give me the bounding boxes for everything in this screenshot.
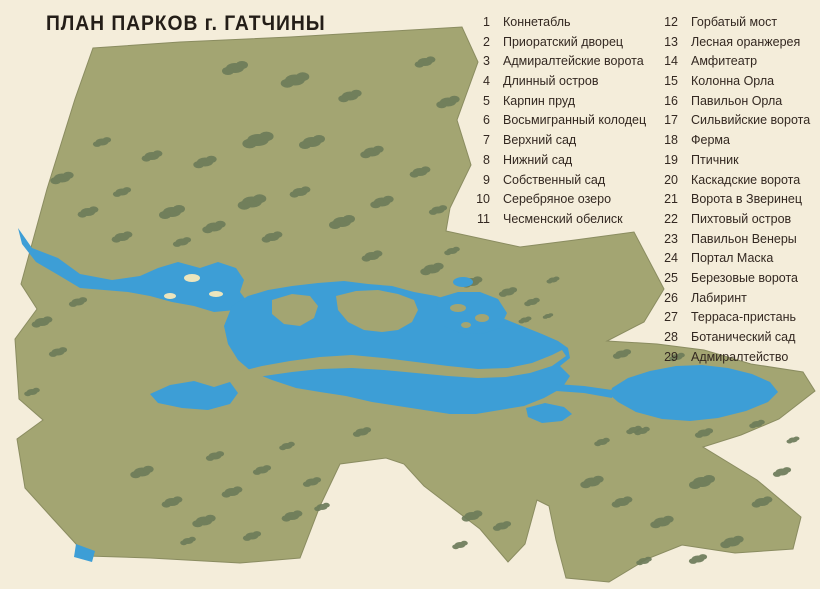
legend-item: 4Длинный остров [472, 72, 657, 92]
legend-item: 26Лабиринт [660, 289, 820, 309]
legend-item-label: Терраса-пристань [691, 308, 820, 328]
legend-item-label: Сильвийские ворота [691, 111, 820, 131]
legend-item-label: Пихтовый остров [691, 210, 820, 230]
legend-item-label: Ферма [691, 131, 820, 151]
legend-item-number: 23 [660, 230, 678, 250]
legend-item-number: 17 [660, 111, 678, 131]
legend-item-number: 29 [660, 348, 678, 368]
forest-blob [773, 467, 791, 477]
map-page: ПЛАН ПАРКОВ г. ГАТЧИНЫ 1Коннетабль2Приор… [0, 0, 820, 589]
legend-item: 21Ворота в Зверинец [660, 190, 820, 210]
legend-item: 7Верхний сад [472, 131, 657, 151]
legend-item: 3Адмиралтейские ворота [472, 52, 657, 72]
legend-item: 29Адмиралтейство [660, 348, 820, 368]
legend-item-label: Адмиралтейские ворота [503, 52, 657, 72]
legend-item-label: Восьмигранный колодец [503, 111, 657, 131]
legend-item: 16Павильон Орла [660, 92, 820, 112]
legend-item-number: 12 [660, 13, 678, 33]
legend-item-number: 25 [660, 269, 678, 289]
legend-item-number: 26 [660, 289, 678, 309]
legend-item-label: Портал Маска [691, 249, 820, 269]
legend-item-number: 21 [660, 190, 678, 210]
legend-item-number: 1 [472, 13, 490, 33]
legend-item: 13Лесная оранжерея [660, 33, 820, 53]
legend-item-number: 22 [660, 210, 678, 230]
legend-item-number: 3 [472, 52, 490, 72]
legend-item: 25Березовые ворота [660, 269, 820, 289]
forest-blob [452, 541, 468, 549]
forest-blob [689, 554, 707, 564]
legend-item-label: Амфитеатр [691, 52, 820, 72]
legend-item: 8Нижний сад [472, 151, 657, 171]
legend-item-number: 7 [472, 131, 490, 151]
legend-item-label: Нижний сад [503, 151, 657, 171]
legend-item-number: 14 [660, 52, 678, 72]
legend-item-label: Лабиринт [691, 289, 820, 309]
legend-item-number: 13 [660, 33, 678, 53]
legend-item-label: Адмиралтейство [691, 348, 820, 368]
legend-item-label: Собственный сад [503, 171, 657, 191]
legend-item-label: Чесменский обелиск [503, 210, 657, 230]
legend-item-label: Коннетабль [503, 13, 657, 33]
legend-item-label: Приоратский дворец [503, 33, 657, 53]
legend-item-label: Птичник [691, 151, 820, 171]
legend-item: 12Горбатый мост [660, 13, 820, 33]
legend-item-number: 6 [472, 111, 490, 131]
legend-item-label: Лесная оранжерея [691, 33, 820, 53]
legend-item: 14Амфитеатр [660, 52, 820, 72]
legend-item-label: Верхний сад [503, 131, 657, 151]
legend-item-label: Каскадские ворота [691, 171, 820, 191]
legend-item: 6Восьмигранный колодец [472, 111, 657, 131]
legend-item-number: 27 [660, 308, 678, 328]
legend-item-label: Горбатый мост [691, 13, 820, 33]
legend-item-label: Колонна Орла [691, 72, 820, 92]
legend-item-number: 28 [660, 328, 678, 348]
legend-item-number: 10 [472, 190, 490, 210]
legend-item-number: 2 [472, 33, 490, 53]
legend-item: 5Карпин пруд [472, 92, 657, 112]
legend-item-number: 8 [472, 151, 490, 171]
legend-item-label: Карпин пруд [503, 92, 657, 112]
legend-item-label: Длинный остров [503, 72, 657, 92]
legend-item: 20Каскадские ворота [660, 171, 820, 191]
legend-item: 27Терраса-пристань [660, 308, 820, 328]
legend-item: 23Павильон Венеры [660, 230, 820, 250]
legend-item-number: 18 [660, 131, 678, 151]
legend-item-number: 9 [472, 171, 490, 191]
legend-item: 19Птичник [660, 151, 820, 171]
legend-item: 17Сильвийские ворота [660, 111, 820, 131]
legend-item: 11Чесменский обелиск [472, 210, 657, 230]
legend-item-number: 15 [660, 72, 678, 92]
legend-item-number: 11 [472, 210, 490, 230]
legend-item: 9Собственный сад [472, 171, 657, 191]
legend-item-number: 16 [660, 92, 678, 112]
legend-item-number: 24 [660, 249, 678, 269]
legend-item-label: Ботанический сад [691, 328, 820, 348]
legend-item: 10Серебряное озеро [472, 190, 657, 210]
legend-item-label: Ворота в Зверинец [691, 190, 820, 210]
legend-item: 2Приоратский дворец [472, 33, 657, 53]
legend-item: 18Ферма [660, 131, 820, 151]
legend-item-number: 5 [472, 92, 490, 112]
legend-column-1: 1Коннетабль2Приоратский дворец3Адмиралте… [472, 13, 657, 230]
legend-item: 1Коннетабль [472, 13, 657, 33]
legend-item-number: 19 [660, 151, 678, 171]
legend-item-label: Березовые ворота [691, 269, 820, 289]
legend-column-2: 12Горбатый мост13Лесная оранжерея14Амфит… [660, 13, 820, 367]
legend-item-number: 20 [660, 171, 678, 191]
legend-item-label: Серебряное озеро [503, 190, 657, 210]
legend-item: 15Колонна Орла [660, 72, 820, 92]
legend-item: 24Портал Маска [660, 249, 820, 269]
legend-item-number: 4 [472, 72, 490, 92]
legend-item: 28Ботанический сад [660, 328, 820, 348]
legend-item-label: Павильон Орла [691, 92, 820, 112]
forest-blob [787, 437, 800, 444]
legend-item-label: Павильон Венеры [691, 230, 820, 250]
legend-item: 22Пихтовый остров [660, 210, 820, 230]
